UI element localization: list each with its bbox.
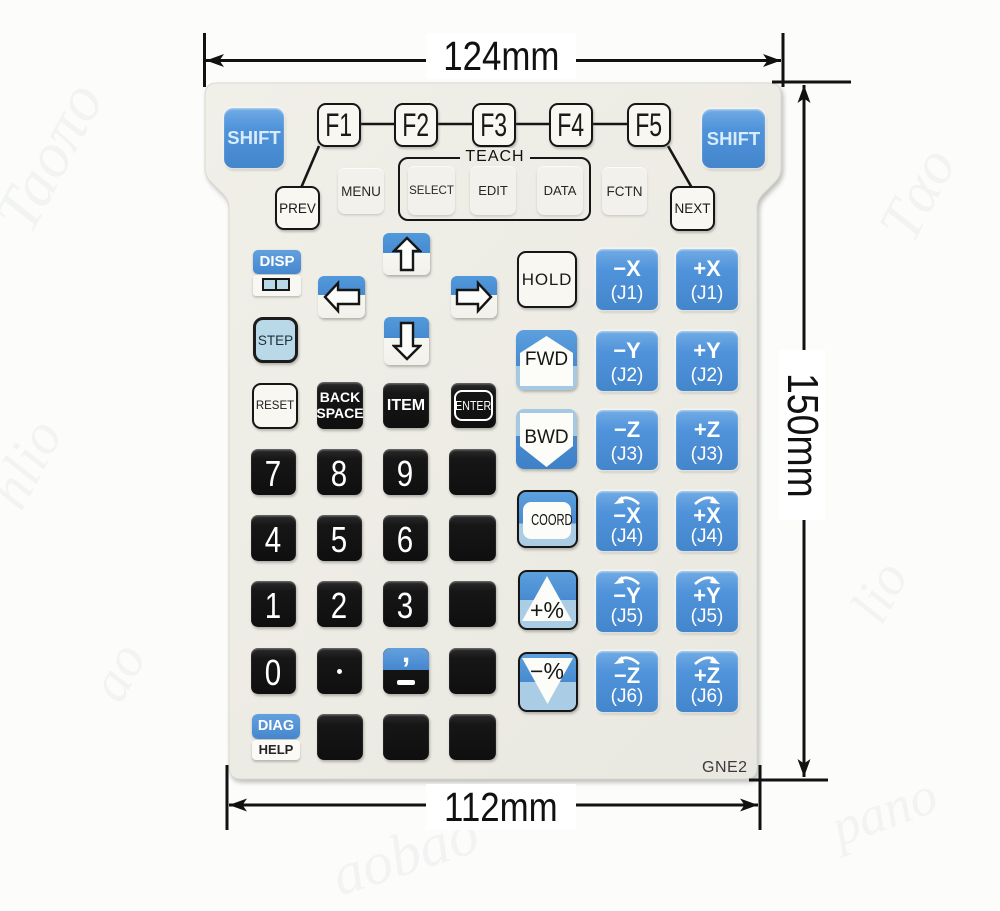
svg-text:−%: −% [530, 658, 564, 684]
svg-text:+%: +% [530, 597, 564, 623]
svg-text:BWD: BWD [524, 427, 568, 448]
svg-text:,: , [402, 648, 410, 669]
svg-text:FWD: FWD [525, 349, 568, 370]
